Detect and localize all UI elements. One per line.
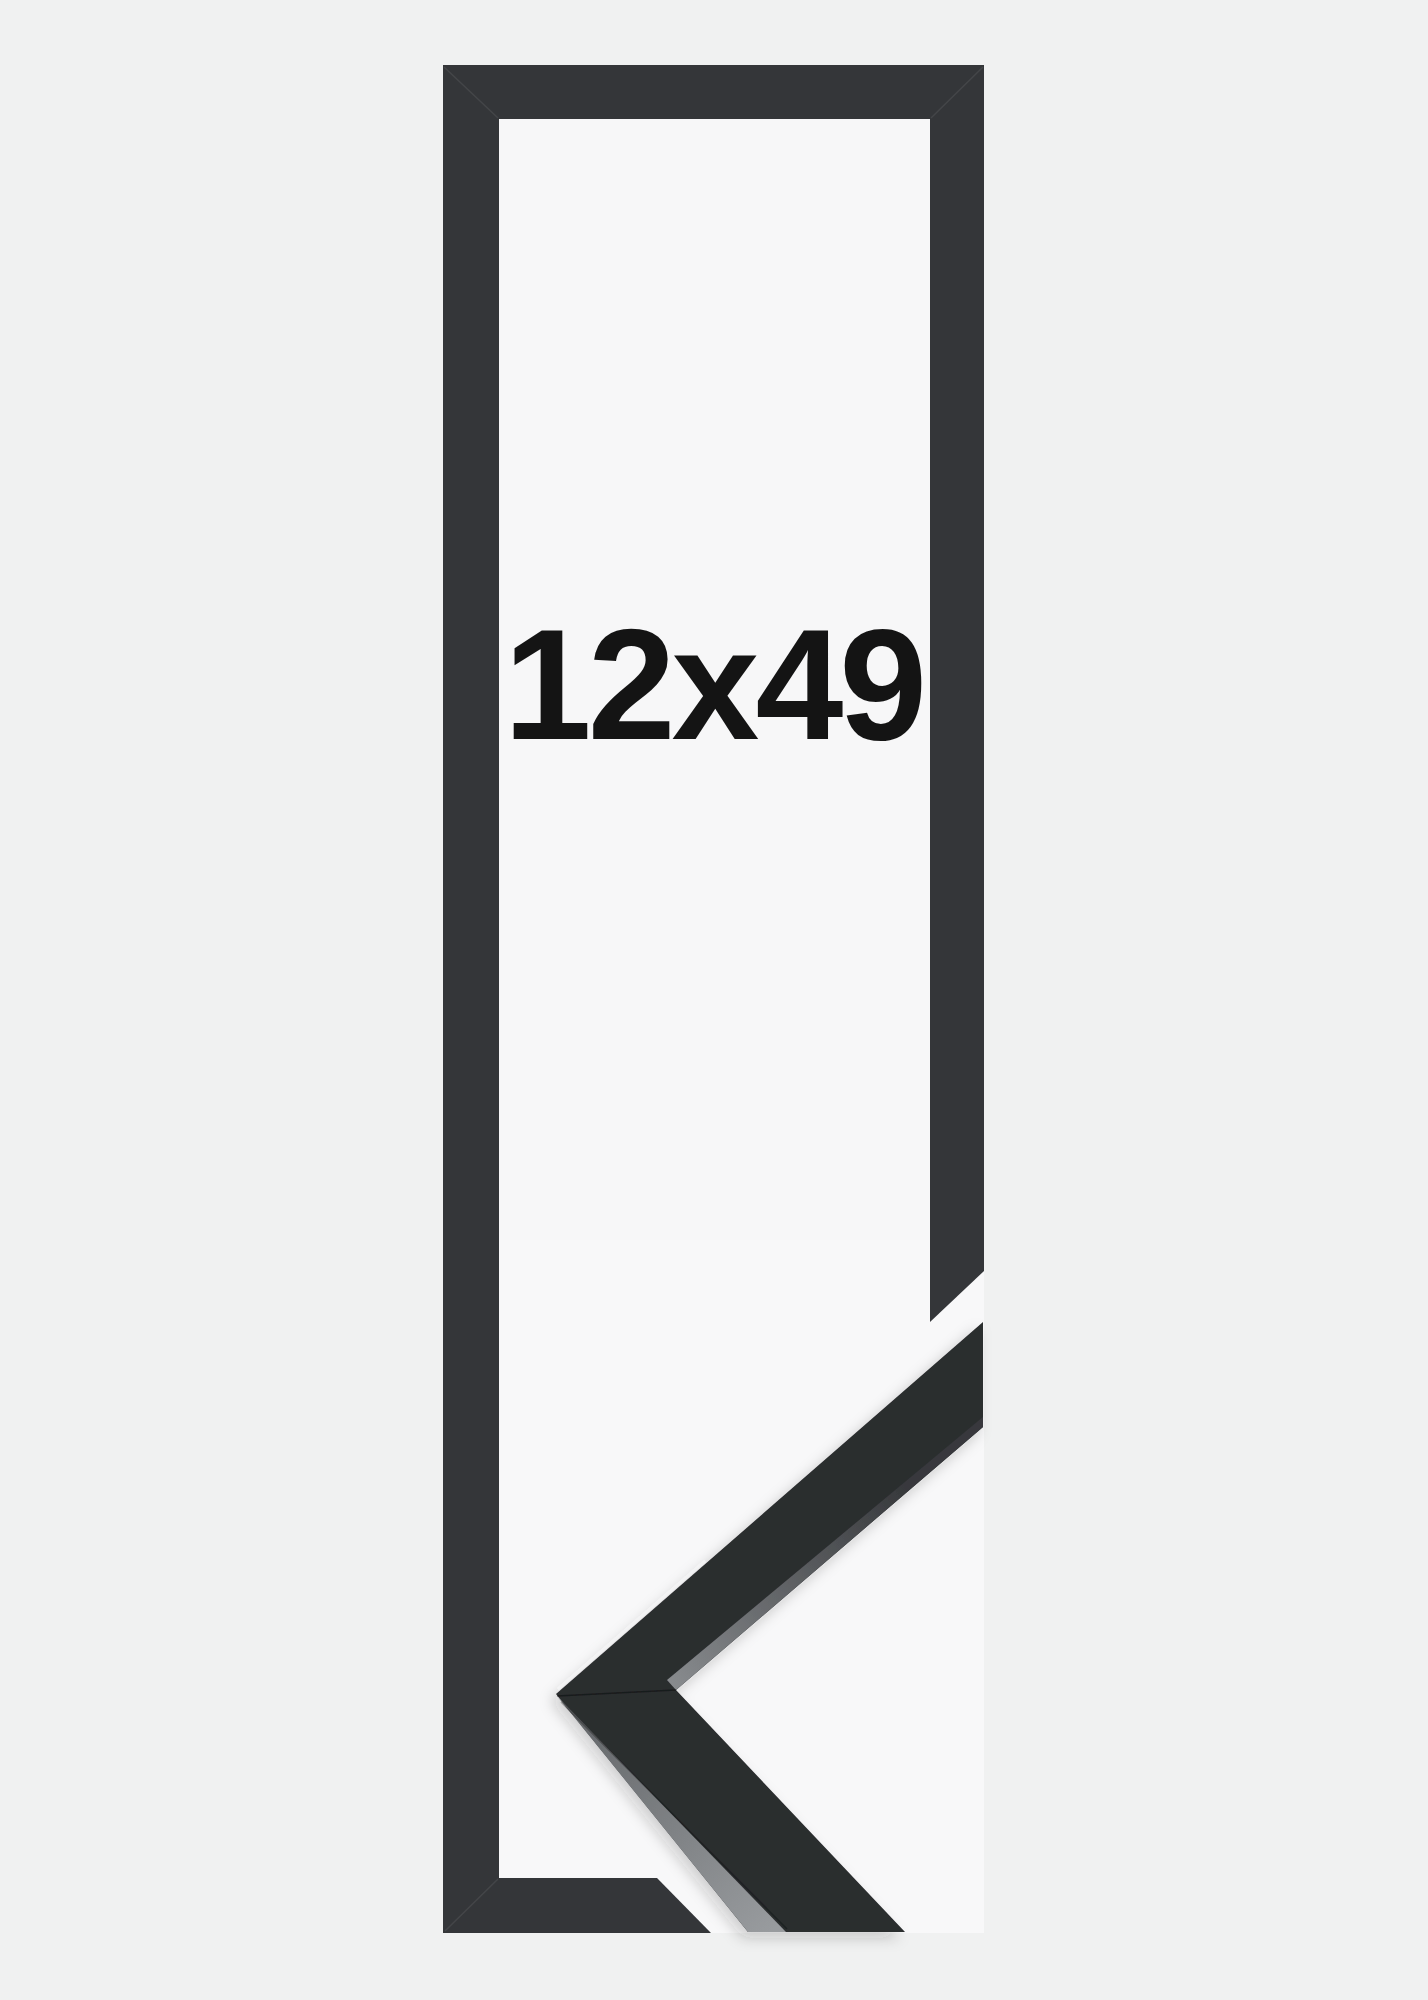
corner-sample: [556, 1322, 983, 1932]
corner-sample-silhouette: [556, 1322, 983, 1932]
size-label: 12x49: [443, 605, 984, 763]
frame-left-bar: [443, 65, 499, 1933]
frame-graphic: [0, 0, 1428, 2000]
corner-sample-upper-arm-side-face: [667, 1417, 983, 1690]
frame-product-image: 12x49: [0, 0, 1428, 2000]
frame-top-bar: [443, 65, 984, 119]
frame-bottom-bar: [443, 1878, 711, 1933]
